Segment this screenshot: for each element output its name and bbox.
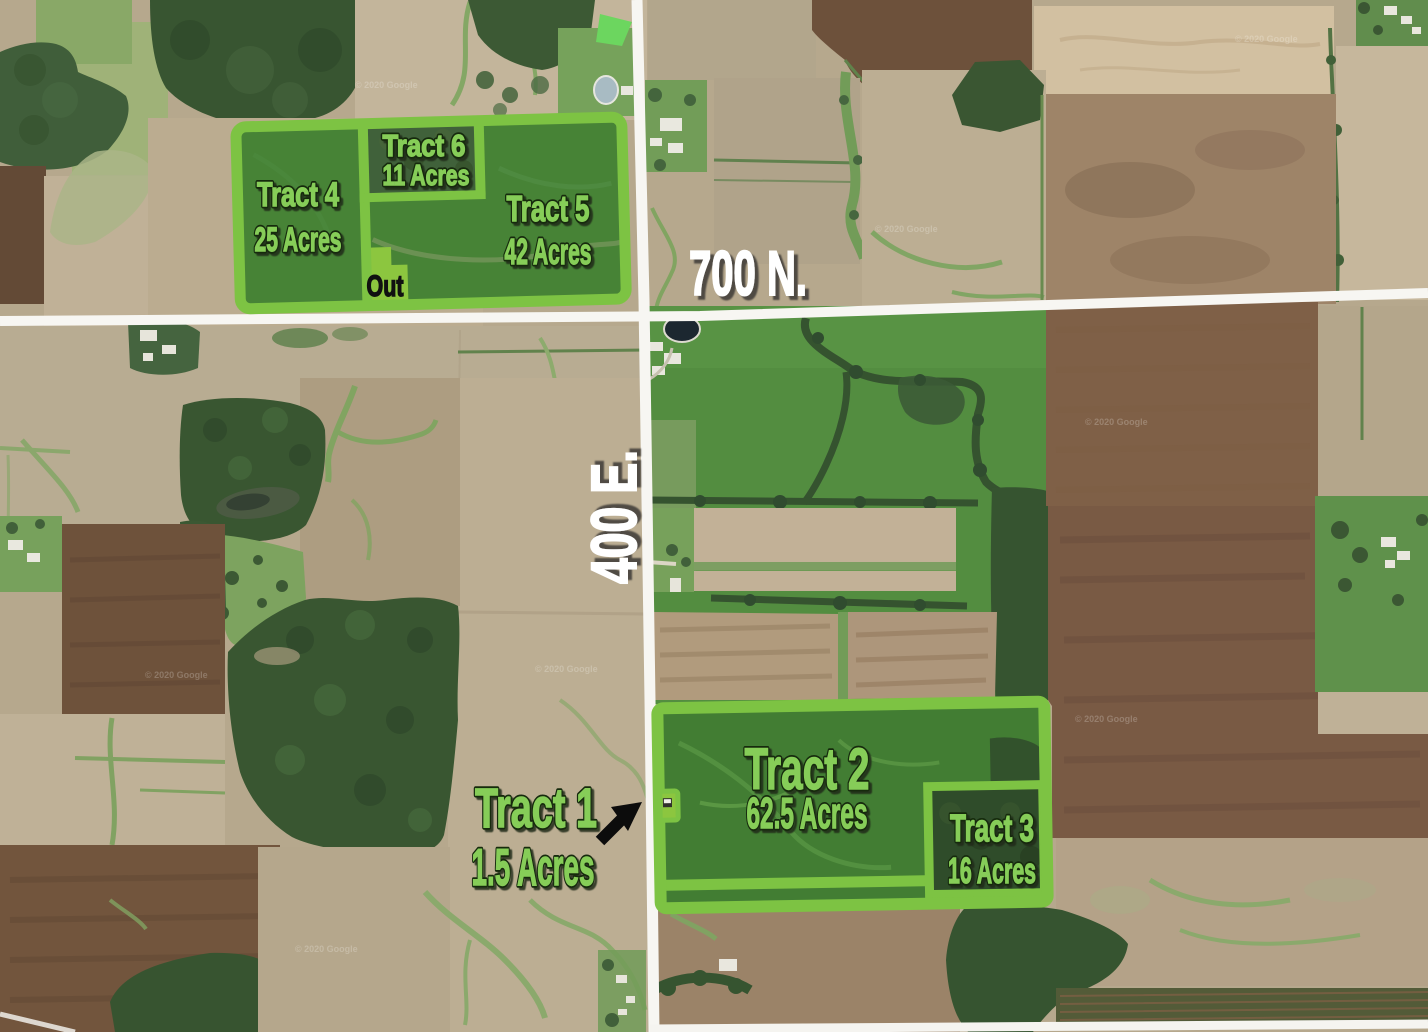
svg-text:62.5 Acres: 62.5 Acres — [747, 789, 868, 838]
svg-text:16 Acres: 16 Acres — [948, 850, 1036, 891]
svg-text:Tract 1: Tract 1 — [475, 776, 597, 839]
svg-text:700 N.: 700 N. — [689, 239, 807, 309]
svg-text:Out: Out — [367, 270, 404, 303]
svg-text:© 2020 Google: © 2020 Google — [1075, 714, 1138, 724]
svg-text:Tract 5: Tract 5 — [507, 188, 590, 229]
svg-text:© 2020 Google: © 2020 Google — [535, 664, 598, 674]
svg-text:© 2020 Google: © 2020 Google — [355, 80, 418, 90]
svg-text:400 E.: 400 E. — [578, 450, 650, 584]
svg-text:© 2020 Google: © 2020 Google — [295, 944, 358, 954]
svg-text:Tract 6: Tract 6 — [383, 128, 466, 163]
svg-text:1.5 Acres: 1.5 Acres — [472, 839, 595, 897]
svg-text:Tract 3: Tract 3 — [950, 808, 1034, 850]
svg-text:25 Acres: 25 Acres — [255, 221, 342, 259]
svg-text:© 2020 Google: © 2020 Google — [1235, 34, 1298, 44]
svg-text:Tract 4: Tract 4 — [257, 176, 339, 214]
svg-text:11 Acres: 11 Acres — [383, 160, 470, 192]
svg-text:© 2020 Google: © 2020 Google — [145, 670, 208, 680]
svg-text:42 Acres: 42 Acres — [505, 231, 592, 272]
svg-text:© 2020 Google: © 2020 Google — [1085, 417, 1148, 427]
svg-text:© 2020 Google: © 2020 Google — [875, 224, 938, 234]
